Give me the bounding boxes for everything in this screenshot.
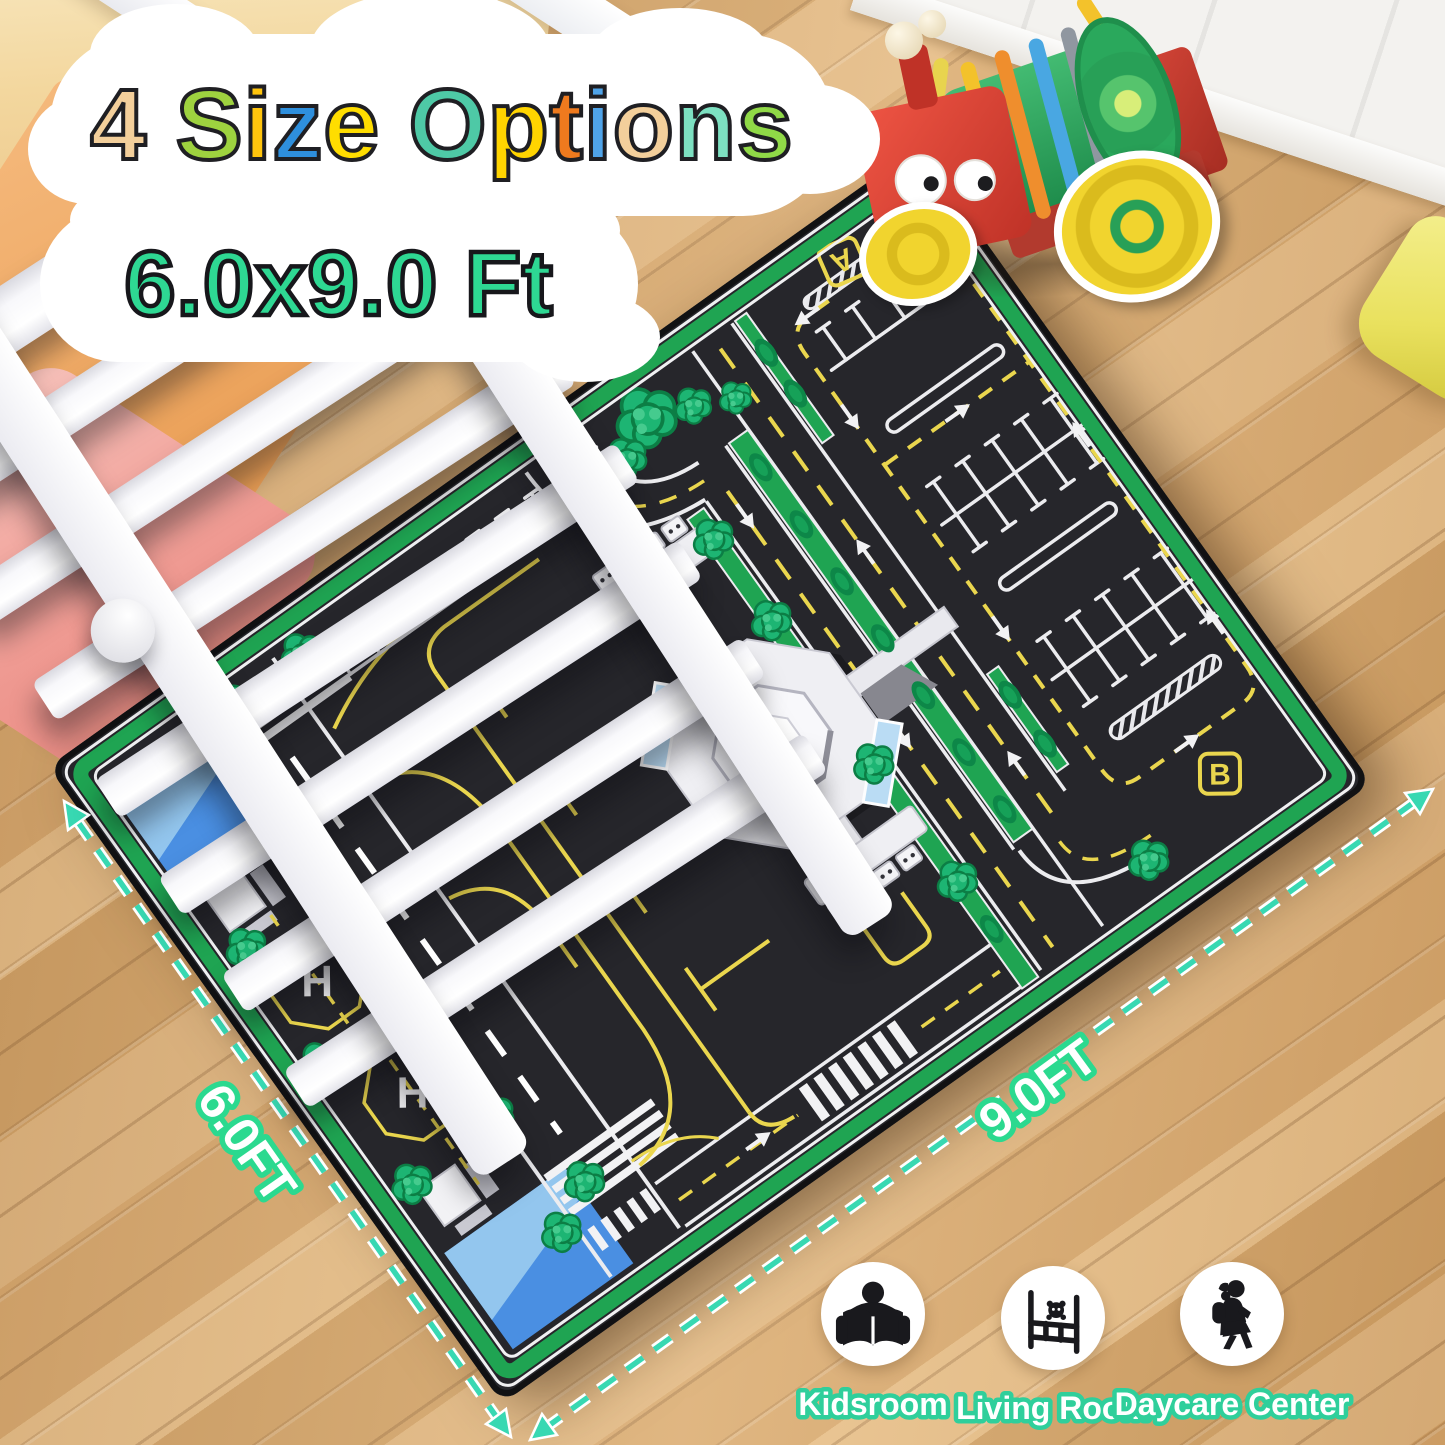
room-label: Daycare Center	[1115, 1386, 1350, 1422]
width-dimension-label: 9.0FT	[969, 1028, 1108, 1150]
room-daycare-center: Daycare Center	[1072, 1262, 1392, 1428]
walking-girl-icon	[1191, 1273, 1273, 1355]
daycare-circle	[1180, 1262, 1284, 1366]
size-cloud: 6.0x9.0 Ft	[40, 206, 638, 362]
product-photo-scene: H H	[0, 0, 1445, 1445]
height-dimension-label: 6.0FT	[187, 1074, 308, 1213]
size-value: 6.0x9.0 Ft	[124, 232, 553, 337]
